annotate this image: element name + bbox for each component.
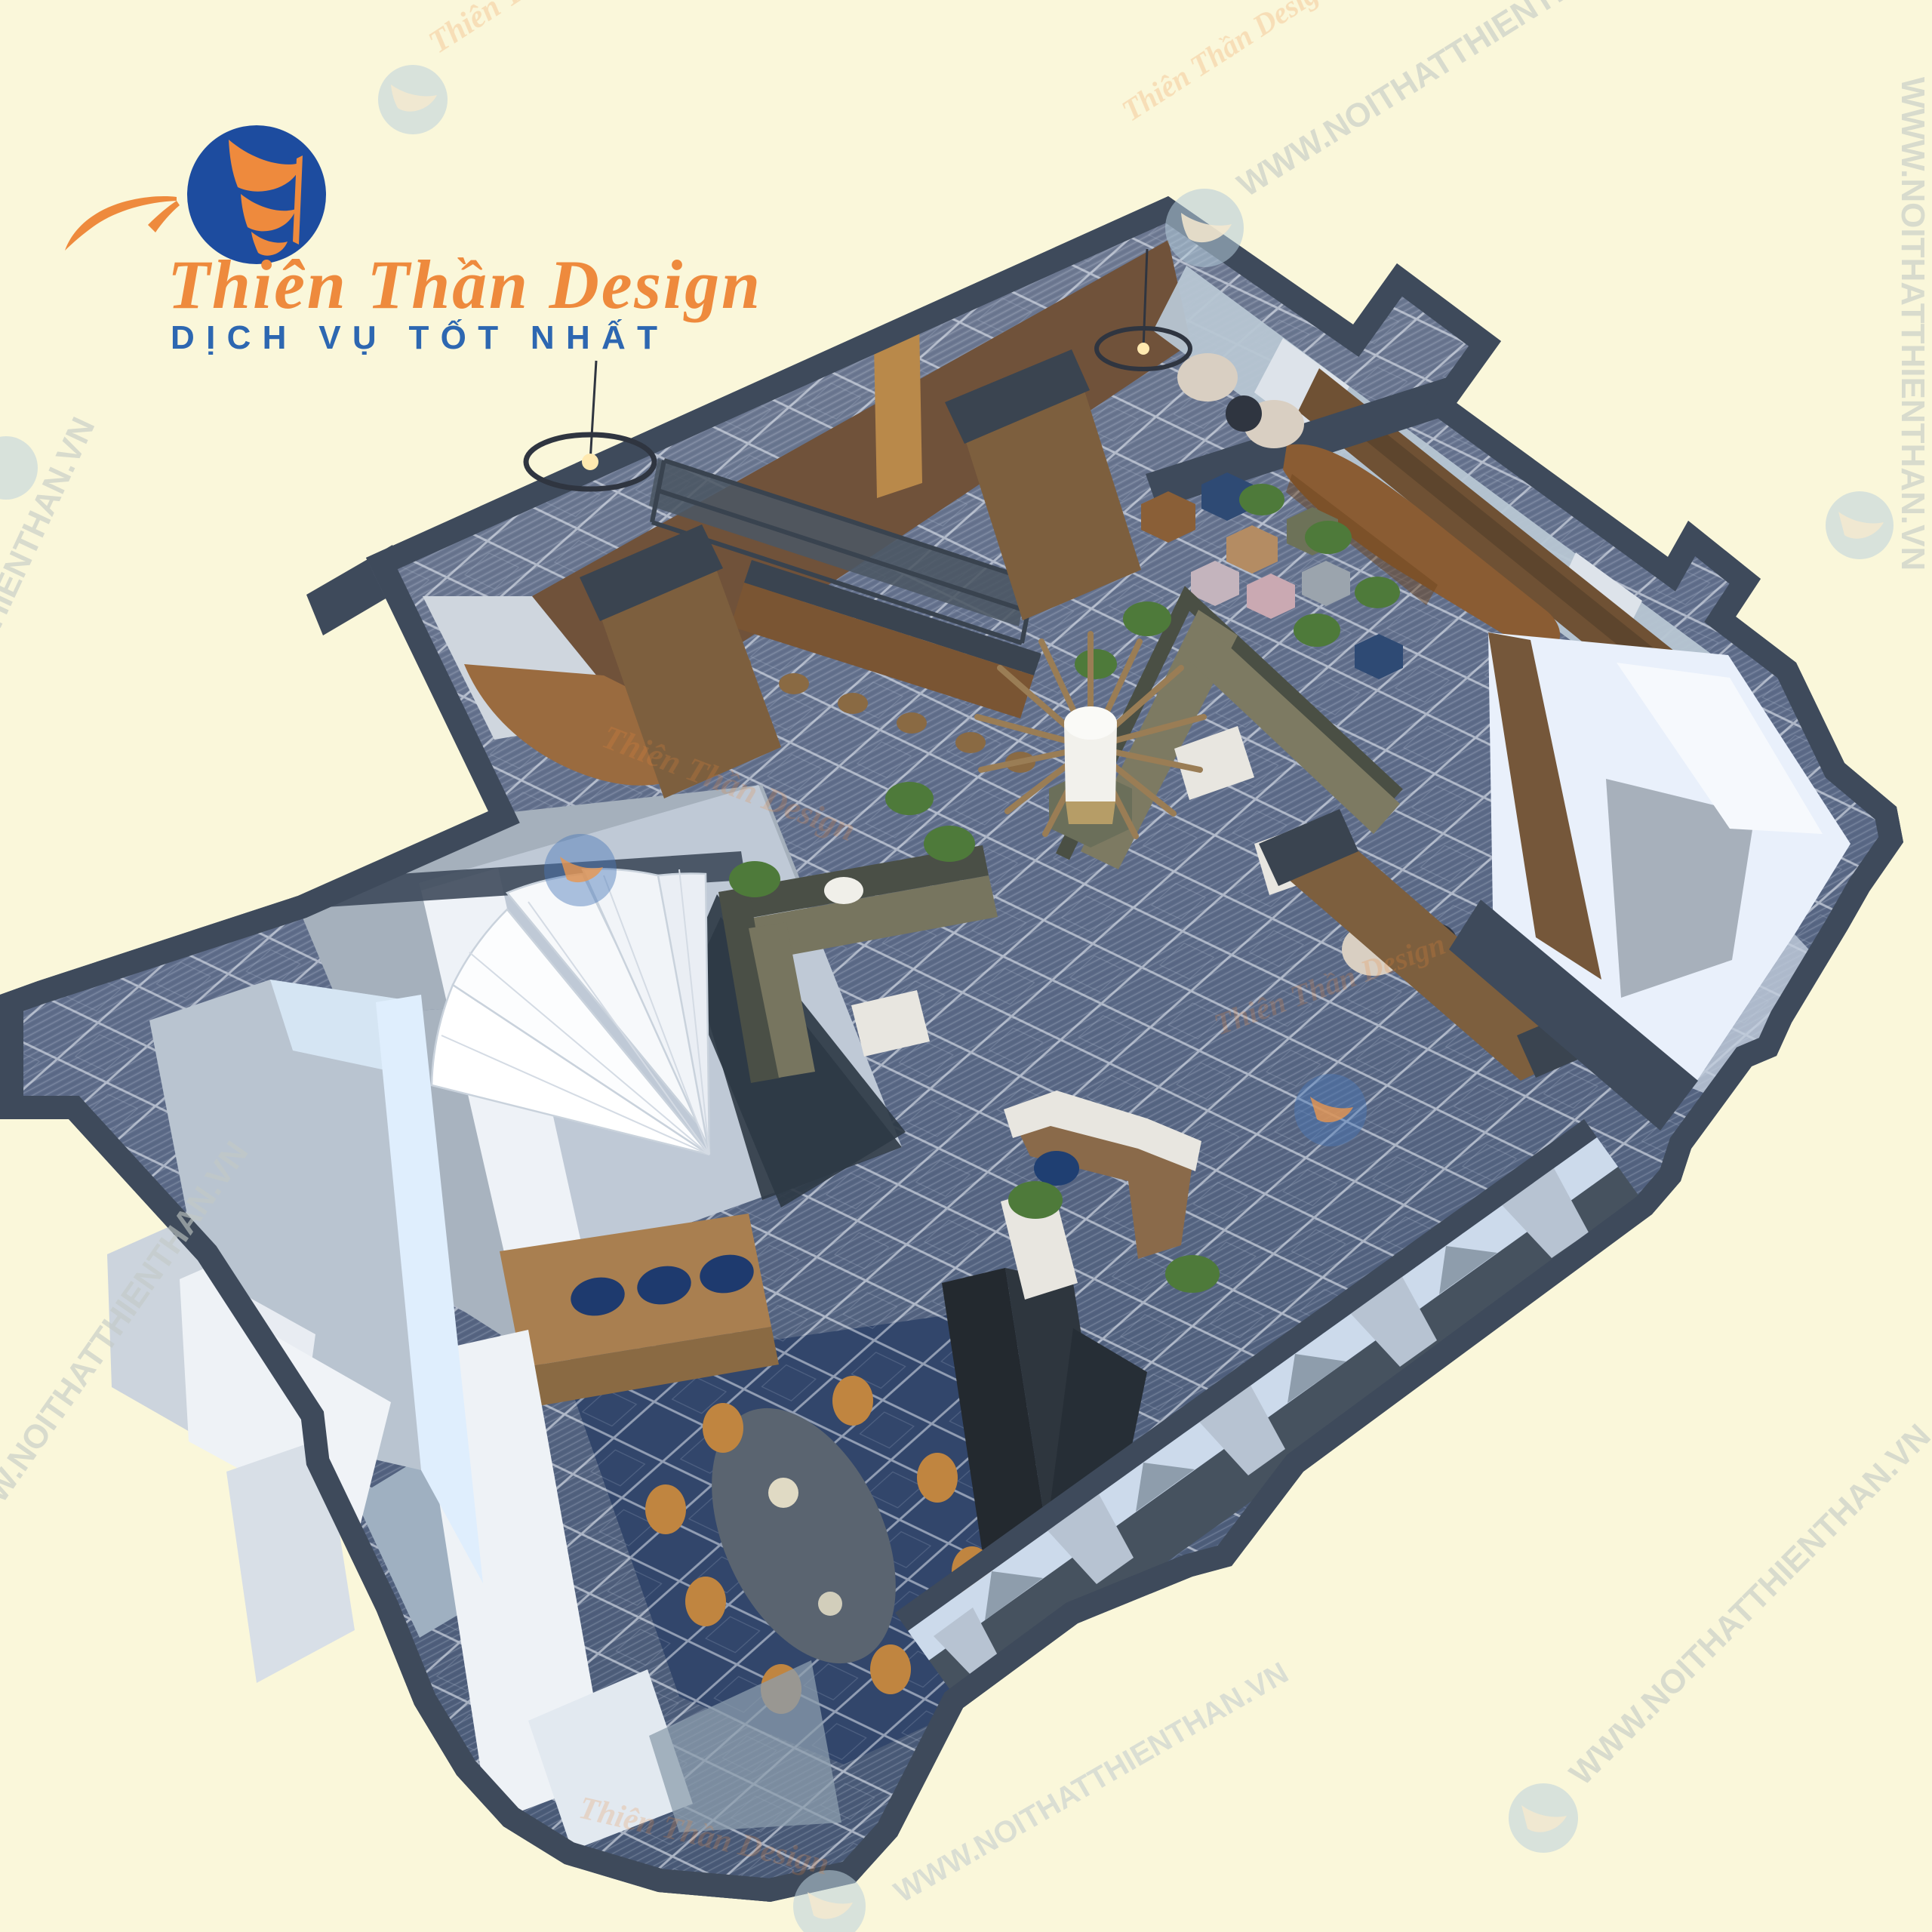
- svg-text:Thiên Thần Design: Thiên Thần Design: [168, 246, 760, 323]
- svg-text:WWW.NOITHATTHIENTHAN.VN: WWW.NOITHATTHIENTHAN.VN: [1894, 77, 1931, 571]
- svg-text:DỊCH VỤ TỐT NHẤT: DỊCH VỤ TỐT NHẤT: [171, 318, 661, 356]
